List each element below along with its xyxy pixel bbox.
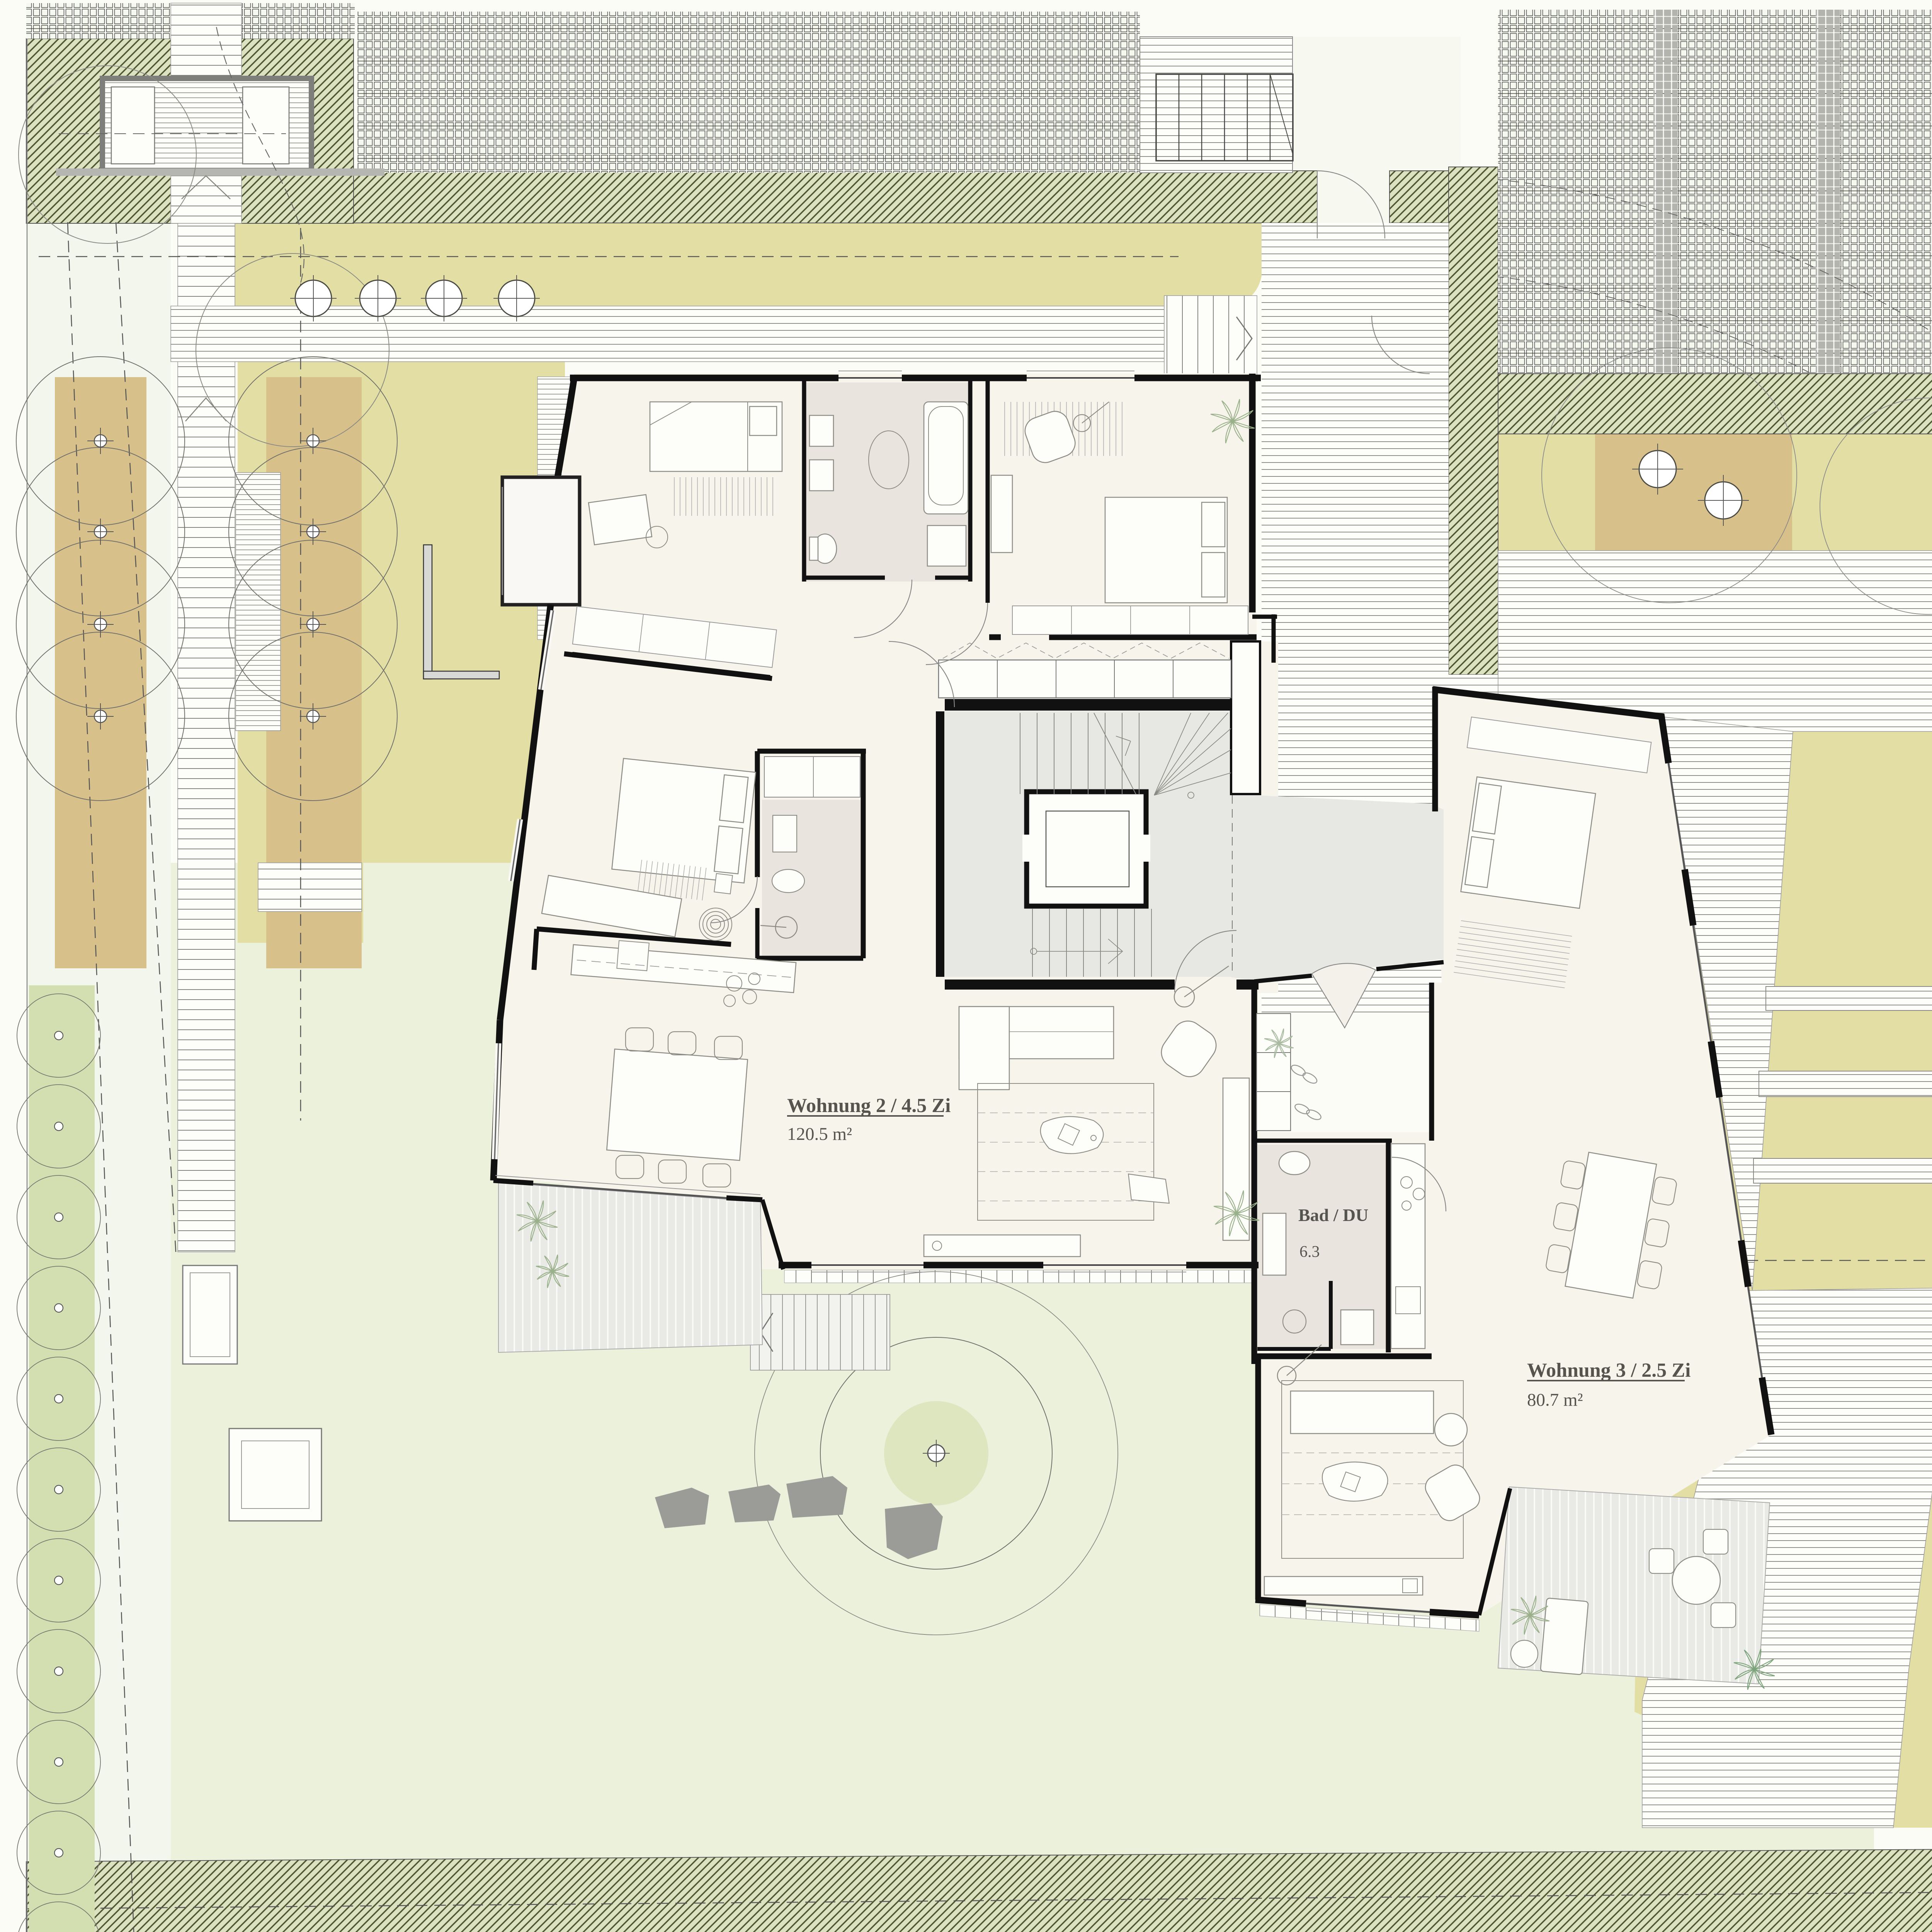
svg-text:Wohnung 2 / 4.5 Zi: Wohnung 2 / 4.5 Zi [787,1095,951,1117]
svg-text:Wohnung 3 / 2.5 Zi: Wohnung 3 / 2.5 Zi [1527,1359,1690,1381]
svg-text:Bad / DU: Bad / DU [1298,1205,1368,1225]
svg-text:80.7 m²: 80.7 m² [1527,1390,1583,1410]
svg-text:6.3: 6.3 [1299,1243,1320,1261]
svg-text:120.5 m²: 120.5 m² [787,1124,852,1144]
